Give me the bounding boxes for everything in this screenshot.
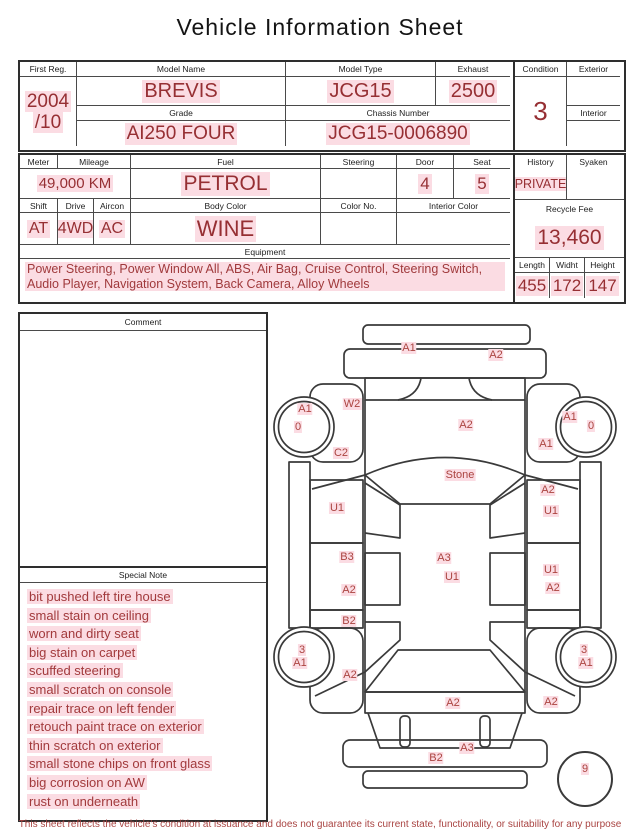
special-note-item: big stain on carpet xyxy=(27,644,266,663)
comment-box: Comment xyxy=(18,312,268,570)
page-title: Vehicle Information Sheet xyxy=(0,14,640,41)
spare-tire xyxy=(558,752,612,806)
equipment-header: Equipment xyxy=(20,245,510,259)
seat-header: Seat xyxy=(454,155,510,169)
spec-table: Meter Mileage Fuel Steering Door Seat 49… xyxy=(18,153,516,304)
drive-value: 4WD xyxy=(58,213,94,245)
right-front-door xyxy=(527,480,580,543)
shift-value: AT xyxy=(20,213,58,245)
trunk-right-hinge xyxy=(480,716,490,747)
width-header: Widht xyxy=(550,258,585,273)
model-name-value: BREVIS xyxy=(77,77,286,106)
body-color-header: Body Color xyxy=(131,199,321,213)
special-note-box: Special Note bit pushed left tire houses… xyxy=(18,566,268,822)
left-c-pillar xyxy=(365,622,400,672)
footer-disclaimer: This sheet reflects the vehicle's condit… xyxy=(0,819,640,830)
equipment-value: Power Steering, Power Window All, ABS, A… xyxy=(20,259,510,298)
identity-table: First Reg. Model Name Model Type Exhaust… xyxy=(18,60,516,152)
height-header: Height xyxy=(585,258,620,273)
recycle-fee-header: Recycle Fee xyxy=(515,200,624,218)
right-rear-seat xyxy=(490,553,525,605)
windshield-bottom xyxy=(365,475,525,504)
fuel-value: PETROL xyxy=(131,169,321,199)
body-color-value: WINE xyxy=(131,213,321,245)
grade-header: Grade xyxy=(77,106,286,121)
recycle-fee-value: 13,460 xyxy=(515,218,624,257)
exterior-value xyxy=(567,77,620,106)
left-rear-seat xyxy=(365,553,400,605)
special-note-item: bit pushed left tire house xyxy=(27,588,266,607)
steering-value xyxy=(321,169,397,199)
special-note-item: big corrosion on AW xyxy=(27,774,266,793)
front-bumper-top-strip xyxy=(363,325,530,344)
model-type-header: Model Type xyxy=(286,62,436,77)
rear-bumper-bottom-strip xyxy=(363,771,527,788)
right-a-pillar-line xyxy=(525,475,578,489)
chassis-number-value: JCG15-0006890 xyxy=(286,121,510,146)
trunk xyxy=(368,713,522,748)
model-name-header: Model Name xyxy=(77,62,286,77)
condition-table: Condition Exterior 3 Interior xyxy=(513,60,626,152)
windshield-top xyxy=(365,458,525,476)
interior-value xyxy=(567,121,620,146)
right-front-seat xyxy=(490,483,525,538)
special-note-item: small stone chips on front glass xyxy=(27,755,266,774)
history-header: History xyxy=(515,155,567,169)
right-headlight-arc xyxy=(469,378,492,400)
rear-right-wheel-inner xyxy=(561,632,612,683)
exhaust-header: Exhaust xyxy=(436,62,510,77)
front-bumper xyxy=(344,349,546,378)
seat-value: 5 xyxy=(454,169,510,199)
first-reg-value: 2004/10 xyxy=(20,77,77,146)
rear-window xyxy=(365,650,525,692)
interior-color-value xyxy=(397,213,510,245)
model-type-value: JCG15 xyxy=(286,77,436,106)
length-header: Length xyxy=(515,258,550,273)
left-rocker-panel xyxy=(289,462,310,628)
special-note-item: worn and dirty seat xyxy=(27,625,266,644)
rear-panel-band xyxy=(365,692,525,713)
trunk-left-hinge xyxy=(400,716,410,747)
special-note-item: repair trace on left fender xyxy=(27,700,266,719)
aircon-header: Aircon xyxy=(94,199,131,213)
history-value: PRIVATE xyxy=(515,169,567,199)
syaken-value xyxy=(567,169,620,199)
rear-left-wheel-inner xyxy=(279,632,330,683)
right-rear-door xyxy=(527,543,580,610)
left-sill-strip xyxy=(310,610,363,628)
comment-header: Comment xyxy=(20,314,266,331)
vehicle-information-sheet: Vehicle Information Sheet First Reg. Mod… xyxy=(0,0,640,835)
height-value: 147 xyxy=(585,273,620,298)
first-reg-header: First Reg. xyxy=(20,62,77,77)
special-note-header: Special Note xyxy=(20,568,266,583)
history-fee-table: History Syaken PRIVATE Recycle Fee 13,46… xyxy=(513,153,626,304)
color-no-header: Color No. xyxy=(321,199,397,213)
recycle-fee-section: Recycle Fee 13,460 xyxy=(515,200,624,258)
left-front-seat xyxy=(365,483,400,538)
meter-header: Meter xyxy=(20,155,58,169)
special-note-item: thin scratch on exterior xyxy=(27,737,266,756)
special-note-list: bit pushed left tire housesmall stain on… xyxy=(20,583,266,811)
right-sill-strip xyxy=(527,610,580,628)
drive-header: Drive xyxy=(58,199,94,213)
rear-bumper xyxy=(343,740,547,767)
steering-header: Steering xyxy=(321,155,397,169)
right-rocker-panel xyxy=(580,462,601,628)
history-section: History Syaken PRIVATE xyxy=(515,155,624,200)
car-damage-diagram xyxy=(265,315,640,820)
front-right-wheel-inner xyxy=(561,402,612,453)
grade-value: AI250 FOUR xyxy=(77,121,286,146)
door-value: 4 xyxy=(397,169,454,199)
special-note-item: rust on underneath xyxy=(27,793,266,812)
width-value: 172 xyxy=(550,273,585,298)
condition-value: 3 xyxy=(515,77,567,146)
interior-header: Interior xyxy=(567,106,620,121)
aircon-value: AC xyxy=(94,213,131,245)
mileage-header: Mileage xyxy=(58,155,131,169)
exterior-header: Exterior xyxy=(567,62,620,77)
front-left-wheel-inner xyxy=(279,402,330,453)
syaken-header: Syaken xyxy=(567,155,620,169)
shift-header: Shift xyxy=(20,199,58,213)
special-note-item: small scratch on console xyxy=(27,681,266,700)
dimensions-section: Length Widht Height 455 172 147 xyxy=(515,258,624,298)
condition-header: Condition xyxy=(515,62,567,77)
chassis-number-header: Chassis Number xyxy=(286,106,510,121)
color-no-value xyxy=(321,213,397,245)
right-c-pillar xyxy=(490,622,525,672)
special-note-item: scuffed steering xyxy=(27,662,266,681)
mileage-value: 49,000 KM xyxy=(20,169,131,199)
exhaust-value: 2500 xyxy=(436,77,510,106)
special-note-item: retouch paint trace on exterior xyxy=(27,718,266,737)
interior-color-header: Interior Color xyxy=(397,199,510,213)
left-rear-door xyxy=(310,543,363,610)
left-headlight-arc xyxy=(398,378,421,400)
fuel-header: Fuel xyxy=(131,155,321,169)
left-a-pillar-line xyxy=(312,475,365,489)
length-value: 455 xyxy=(515,273,550,298)
left-front-door xyxy=(310,480,363,543)
front-panel xyxy=(365,378,525,400)
special-note-item: small stain on ceiling xyxy=(27,607,266,626)
door-header: Door xyxy=(397,155,454,169)
